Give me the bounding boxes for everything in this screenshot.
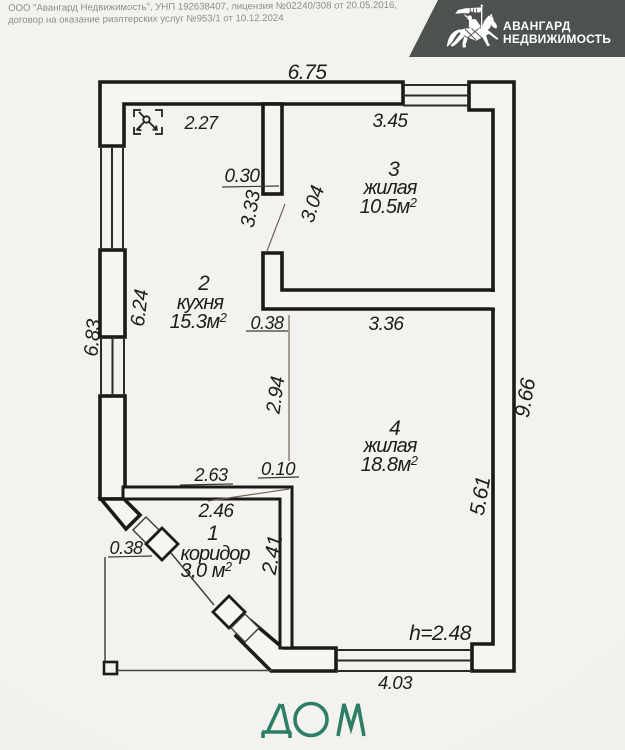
svg-text:0.10: 0.10 [261,458,296,479]
svg-text:6.83: 6.83 [80,318,105,357]
svg-text:18.8м2: 18.8м2 [361,453,419,476]
svg-text:6.24: 6.24 [127,288,153,328]
svg-text:3.36: 3.36 [369,314,405,335]
svg-text:2.94: 2.94 [262,375,289,416]
svg-text:5.61: 5.61 [466,475,495,517]
svg-text:h=2.48: h=2.48 [409,622,472,645]
svg-text:4.03: 4.03 [378,672,413,693]
svg-text:15.3м2: 15.3м2 [170,310,228,333]
svg-text:1: 1 [207,522,219,545]
svg-text:10.5м2: 10.5м2 [360,195,418,218]
svg-text:НЕДВИЖИМОСТЬ: НЕДВИЖИМОСТЬ [503,32,611,46]
svg-text:6.75: 6.75 [288,61,328,84]
svg-text:3.33: 3.33 [237,189,265,230]
svg-text:2.27: 2.27 [183,113,219,133]
svg-text:3,0 м2: 3,0 м2 [180,559,233,582]
svg-text:3.04: 3.04 [297,183,329,225]
svg-text:2.63: 2.63 [193,465,228,485]
svg-text:0.38: 0.38 [250,313,284,333]
svg-text:0.38: 0.38 [109,538,143,558]
svg-text:3.45: 3.45 [373,111,409,132]
svg-text:0.30: 0.30 [225,166,261,187]
svg-text:2.46: 2.46 [198,501,235,522]
svg-text:АВАНГАРД: АВАНГАРД [503,19,571,33]
